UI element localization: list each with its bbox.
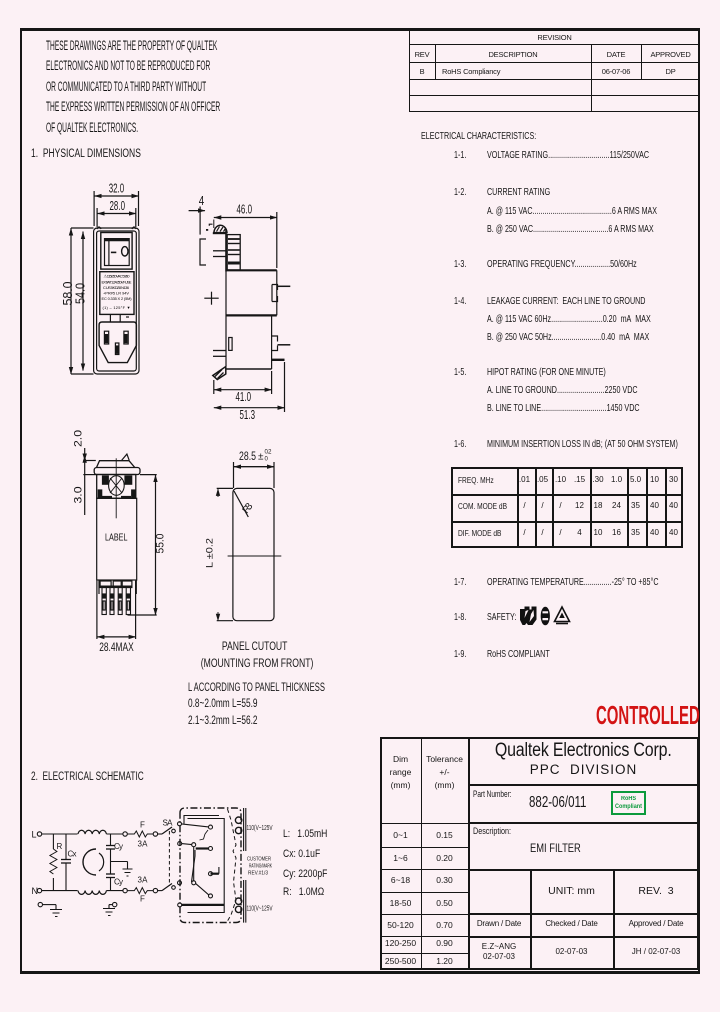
svg-text:±: ± <box>258 452 264 463</box>
svg-text:0: 0 <box>265 457 269 463</box>
svg-text:2.0: 2.0 <box>73 430 85 447</box>
svg-text:3 A: 3 A <box>138 840 149 849</box>
svg-text:LABEL: LABEL <box>105 532 128 544</box>
svg-text:0.2: 0.2 <box>265 450 273 456</box>
svg-text:Cx: Cx <box>68 850 77 859</box>
svg-text:4: 4 <box>199 194 205 208</box>
svg-text:28.5: 28.5 <box>239 451 256 463</box>
svg-text:Cy: Cy <box>114 878 123 887</box>
svg-text:⚠ 115/250VAC 50/60: ⚠ 115/250VAC 50/60 <box>104 274 131 279</box>
svg-text:55.0: 55.0 <box>155 534 167 554</box>
svg-text:CUSTOMER: CUSTOMER <box>247 857 271 863</box>
svg-text:28.4MAX: 28.4MAX <box>99 642 134 654</box>
svg-text:54.0: 54.0 <box>73 283 87 304</box>
svg-text:L: L <box>32 830 37 840</box>
svg-text:SA: SA <box>163 819 174 828</box>
svg-text:3 A: 3 A <box>138 876 149 885</box>
svg-text:C US 5KDZ8 N136: C US 5KDZ8 N136 <box>103 285 129 290</box>
svg-text:51.3: 51.3 <box>240 408 256 422</box>
svg-text:28.0: 28.0 <box>110 199 126 213</box>
svg-text:R3: R3 <box>241 501 256 516</box>
svg-text:EC 0.335 X 2 (5M): EC 0.335 X 2 (5M) <box>102 296 133 301</box>
svg-text:41.0: 41.0 <box>236 390 252 404</box>
svg-text:3.0: 3.0 <box>73 487 85 504</box>
svg-text:110(V~125V: 110(V~125V <box>247 823 273 832</box>
svg-text:F: F <box>140 821 145 830</box>
svg-text:110(V~125V: 110(V~125V <box>247 904 273 913</box>
svg-text:N: N <box>32 886 39 896</box>
svg-text:EX 6A/T1.2A 250V FUSE: EX 6A/T1.2A 250V FUSE <box>102 280 132 285</box>
svg-text:F: F <box>140 895 145 904</box>
svg-text:RATING/MARK: RATING/MARK <box>249 864 272 870</box>
svg-text:46.0: 46.0 <box>237 203 253 217</box>
svg-text:REV.#1/3: REV.#1/3 <box>248 871 268 877</box>
svg-text:Cy: Cy <box>114 842 123 851</box>
svg-text:R: R <box>57 842 63 851</box>
svg-text:L ±0.2: L ±0.2 <box>205 538 215 568</box>
svg-text:32.0: 32.0 <box>109 182 125 196</box>
svg-text:+PR#5 LR 94V: +PR#5 LR 94V <box>103 291 129 296</box>
svg-text:(1) – 125°F ▼: (1) – 125°F ▼ <box>103 305 131 310</box>
